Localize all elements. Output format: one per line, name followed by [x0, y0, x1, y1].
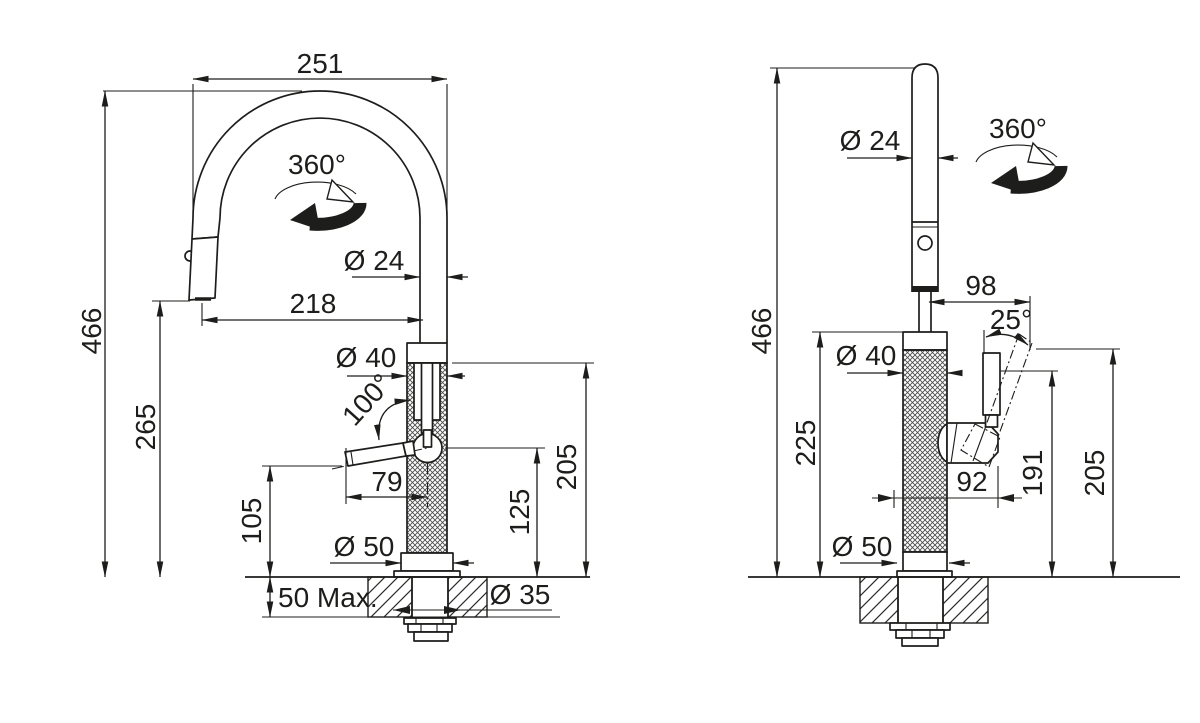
faucet-dimension-drawing: 466 251 265 218 Ø 24 360°: [0, 0, 1200, 723]
dim-overall-height: 466: [76, 91, 302, 577]
mounting-hole-label: Ø 35: [490, 579, 551, 610]
swivel-annotation-side: 360°: [976, 113, 1061, 193]
dim-deck-thickness: 50 Max.: [270, 577, 378, 617]
handle-side: [947, 334, 1032, 467]
lever: [983, 353, 1000, 415]
handle-top-height-label: 205: [1079, 450, 1110, 497]
spout-reach-label: 218: [290, 288, 337, 319]
dim-body-top-height: 205: [452, 363, 594, 577]
body-top-height-label: 205: [551, 444, 582, 491]
deck-thickness-label: 50 Max.: [278, 582, 378, 613]
body-diameter-label: Ø 40: [336, 342, 397, 373]
body-height-side-label: 225: [790, 420, 821, 467]
dim-outlet-height: 265: [130, 301, 190, 577]
dim-handle-clearance: 105: [236, 466, 342, 577]
handle-length-label: 79: [371, 466, 402, 497]
handle-reach-label: 98: [965, 270, 996, 301]
mounting-nut: [404, 618, 456, 641]
front-view-drawing: 466 251 265 218 Ø 24 360°: [76, 48, 594, 641]
dim-overall-width: 251: [193, 48, 447, 215]
dim-handle-top-height: 205: [1036, 349, 1120, 577]
faucet-body: [394, 343, 460, 577]
spray-tube: [912, 64, 938, 332]
overall-height-side-label: 466: [746, 308, 777, 355]
valve-housing: [947, 423, 998, 463]
handle-pivot-height-label: 191: [1017, 450, 1048, 497]
swivel-range-side-label: 360°: [989, 113, 1047, 144]
technical-drawing-page: 466 251 265 218 Ø 24 360°: [0, 0, 1200, 723]
spray-head: [185, 237, 218, 300]
base-diameter-label: Ø 50: [334, 531, 395, 562]
faucet-body-side: [897, 332, 952, 577]
dim-spout-reach: 218: [202, 288, 423, 326]
outlet-height-label: 265: [130, 404, 161, 451]
counter-hatch-left-side: [860, 577, 898, 623]
counter-hatch-right-side: [943, 577, 988, 623]
overall-height-label: 466: [76, 308, 107, 355]
mounting-nut-side: [890, 623, 950, 646]
counter-section-side: [748, 577, 1180, 623]
handle-clearance-label: 105: [236, 498, 267, 545]
valve-center-height-label: 125: [504, 489, 535, 536]
rotation-360-icon: [275, 180, 360, 230]
handle-swing-angle-label: 100°: [336, 368, 398, 432]
rotation-360-icon-side: [976, 143, 1061, 193]
spout-tube-diameter-label: Ø 24: [344, 245, 405, 276]
spray-button-side: [918, 236, 932, 250]
dim-valve-center-height: 125: [445, 448, 545, 577]
dim-handle-tilt-angle: 25°: [984, 304, 1032, 354]
dim-handle-pivot-height: 191: [1000, 371, 1058, 577]
dim-spout-tube-diameter: Ø 24: [344, 245, 468, 277]
handle-tilt-angle-label: 25°: [990, 304, 1032, 335]
dim-spray-tube-diameter: Ø 24: [840, 125, 958, 158]
overall-width-label: 251: [297, 48, 344, 79]
swivel-range-label: 360°: [288, 149, 346, 180]
dim-base-diameter-side: Ø 50: [832, 531, 970, 563]
swivel-annotation: 360°: [275, 149, 360, 230]
dim-handle-swing-angle: 100°: [336, 368, 410, 440]
body-diameter-side-label: Ø 40: [836, 340, 897, 371]
side-view-drawing: 466 Ø 24 360° 98 25° 225: [746, 64, 1180, 646]
base-diameter-side-label: Ø 50: [832, 531, 893, 562]
spray-tube-diameter-label: Ø 24: [840, 125, 901, 156]
handle-offset-label: 92: [956, 466, 987, 497]
